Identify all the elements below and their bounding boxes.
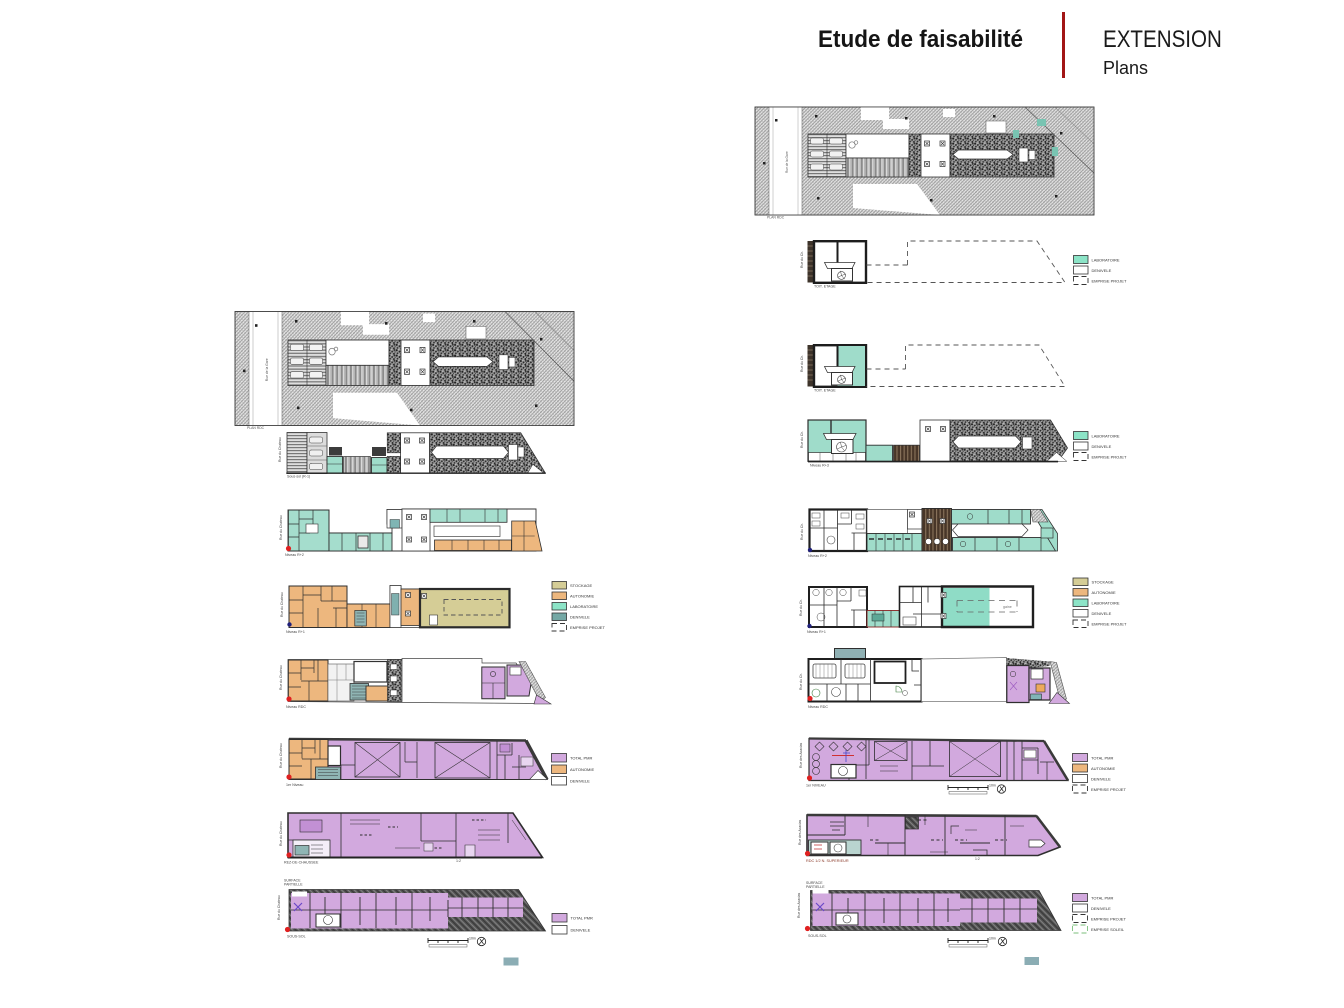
svg-text:EMPRISE PROJET: EMPRISE PROJET	[1092, 622, 1127, 627]
svg-text:AUTONOMIE: AUTONOMIE	[570, 767, 594, 772]
svg-text:LABORATOIRE: LABORATOIRE	[1092, 601, 1120, 606]
svg-text:Rue du Ch.: Rue du Ch.	[800, 523, 804, 540]
svg-text:TOTAL PMR: TOTAL PMR	[1091, 756, 1113, 761]
svg-text:Rue du Ch.: Rue du Ch.	[800, 431, 804, 448]
svg-text:LABORATOIRE: LABORATOIRE	[1092, 258, 1120, 263]
svg-text:EMPRISE SOLEIL: EMPRISE SOLEIL	[1091, 927, 1125, 932]
svg-text:TOIT. ETAGE: TOIT. ETAGE	[814, 285, 836, 289]
svg-text:LABORATOIRE: LABORATOIRE	[570, 604, 598, 609]
svg-text:SOUS-SOL: SOUS-SOL	[808, 934, 827, 938]
svg-text:Rue des Acacias: Rue des Acacias	[798, 819, 802, 845]
svg-text:Niveau RDC: Niveau RDC	[808, 705, 828, 709]
svg-text:Niveau R+1: Niveau R+1	[807, 630, 826, 634]
svg-text:Rue du Ch.: Rue du Ch.	[800, 251, 804, 268]
svg-text:STOCKAGE: STOCKAGE	[1092, 580, 1114, 585]
svg-text:PARTIELLE: PARTIELLE	[284, 883, 303, 887]
svg-text:Niveau R+1: Niveau R+1	[286, 630, 305, 634]
svg-text:Rue du Chateau: Rue du Chateau	[279, 821, 283, 846]
svg-text:Rue du Chateau: Rue du Chateau	[279, 515, 283, 540]
svg-text:SOUS-SOL: SOUS-SOL	[287, 935, 306, 939]
svg-text:Rue du Chateau: Rue du Chateau	[279, 743, 283, 768]
svg-text:TOTAL PMR: TOTAL PMR	[1091, 896, 1113, 901]
svg-text:TOTAL PMR: TOTAL PMR	[571, 916, 593, 921]
svg-text:Niveau R+2: Niveau R+2	[285, 553, 304, 557]
svg-text:TOTAL PMR: TOTAL PMR	[570, 756, 592, 761]
svg-text:STOCKAGE: STOCKAGE	[570, 583, 592, 588]
svg-text:Rue du Chateau: Rue du Chateau	[280, 592, 284, 617]
svg-text:TOIT. ETAGE: TOIT. ETAGE	[814, 389, 836, 393]
svg-text:1er NIVEAU: 1er NIVEAU	[806, 784, 826, 788]
svg-text:Niveau RDC: Niveau RDC	[286, 705, 306, 709]
svg-text:EMPRISE PROJET: EMPRISE PROJET	[1091, 917, 1126, 922]
svg-text:10m: 10m	[469, 937, 476, 941]
svg-text:EMPRISE PROJET: EMPRISE PROJET	[1092, 279, 1127, 284]
svg-text:AUTONOMIE: AUTONOMIE	[1092, 590, 1116, 595]
svg-text:1:2: 1:2	[456, 859, 461, 863]
svg-text:10m: 10m	[989, 784, 996, 788]
svg-text:DENIVELE: DENIVELE	[571, 928, 591, 933]
svg-text:Rue du Ch.: Rue du Ch.	[800, 355, 804, 372]
svg-text:DENIVELE: DENIVELE	[1092, 268, 1112, 273]
svg-text:10m: 10m	[989, 937, 996, 941]
svg-text:Rue du Ch.: Rue du Ch.	[799, 673, 803, 690]
svg-text:Rue du Ch.: Rue du Ch.	[799, 599, 803, 616]
svg-text:LABORATOIRE: LABORATOIRE	[1092, 434, 1120, 439]
svg-text:DENIVELE: DENIVELE	[1092, 444, 1112, 449]
svg-text:Rue du Chateau: Rue du Chateau	[279, 665, 283, 690]
svg-text:Rue des Acacias: Rue des Acacias	[799, 742, 803, 768]
svg-text:EMPRISE PROJET: EMPRISE PROJET	[570, 625, 605, 630]
svg-text:REZ-DE-CHAUSSEE: REZ-DE-CHAUSSEE	[284, 861, 319, 865]
svg-text:AUTONOMIE: AUTONOMIE	[570, 594, 594, 599]
svg-text:DENIVELE: DENIVELE	[1092, 611, 1112, 616]
svg-text:DENIVELE: DENIVELE	[570, 615, 590, 620]
svg-text:Rue du Chateau: Rue du Chateau	[278, 437, 282, 462]
svg-text:Niveau R+2: Niveau R+2	[808, 554, 827, 558]
svg-text:1er Niveau: 1er Niveau	[286, 783, 303, 787]
svg-text:Sous-sol (R-1): Sous-sol (R-1)	[287, 475, 310, 479]
svg-text:Niveau R+3: Niveau R+3	[810, 464, 829, 468]
svg-text:Rue du Chateau: Rue du Chateau	[277, 895, 281, 920]
svg-text:AUTONOMIE: AUTONOMIE	[1091, 766, 1115, 771]
svg-text:DENIVELE: DENIVELE	[570, 779, 590, 784]
svg-text:EMPRISE PROJET: EMPRISE PROJET	[1092, 455, 1127, 460]
svg-text:EMPRISE PROJET: EMPRISE PROJET	[1091, 787, 1126, 792]
svg-text:RDC 1/2 N. SUPERIEUR: RDC 1/2 N. SUPERIEUR	[806, 859, 849, 863]
svg-text:1:2: 1:2	[975, 857, 980, 861]
svg-text:Rue des Acacias: Rue des Acacias	[797, 892, 801, 918]
svg-text:PARTIELLE: PARTIELLE	[806, 885, 825, 889]
svg-text:gaine: gaine	[1003, 605, 1012, 609]
svg-text:DENIVELE: DENIVELE	[1091, 777, 1111, 782]
svg-text:DENIVELE: DENIVELE	[1091, 906, 1111, 911]
